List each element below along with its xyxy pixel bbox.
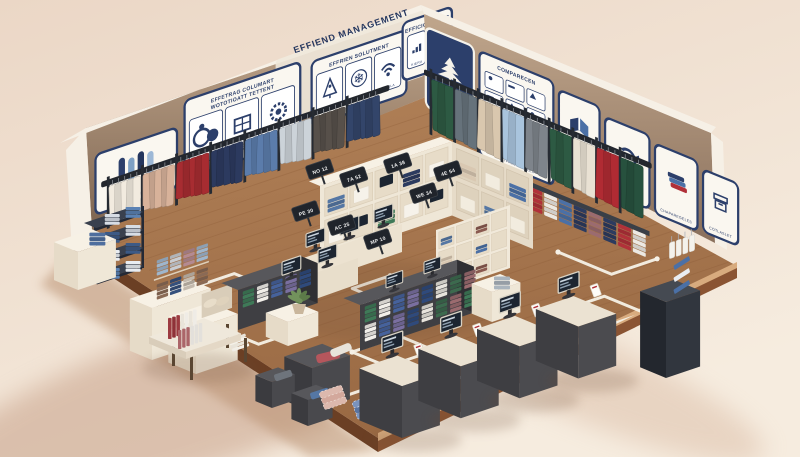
store-illustration: GOSTYRSGOSTYRSEFFETRAG COLUMARTWOTOTIOAT… (0, 0, 800, 457)
hanging-garment (166, 164, 175, 207)
jeans-stack (89, 233, 105, 237)
wall-sign-archive: COTLASLET (703, 169, 738, 246)
path-node (654, 256, 659, 261)
hanging-garment (468, 94, 478, 150)
hanging-garment (336, 107, 345, 150)
hanging-garment (586, 143, 596, 199)
path-node (555, 249, 560, 254)
metal-shelf-stack (105, 218, 120, 221)
standing-book (199, 323, 202, 342)
metal-shelf-stack (105, 214, 120, 217)
small-display-cube (255, 367, 294, 408)
metal-shelf-stack (126, 251, 141, 254)
box-left-face (130, 299, 152, 360)
table-leg (190, 356, 193, 380)
jeans-stack (89, 237, 105, 241)
jeans-stack (89, 242, 105, 246)
metal-shelf-stack (126, 215, 141, 218)
metal-shelf-stack (105, 232, 120, 235)
box-left-face (640, 291, 666, 378)
hanging-garment (372, 95, 380, 137)
hanging-garment (270, 129, 279, 171)
metal-shelf-stack (126, 243, 141, 246)
metal-shelf-stack (126, 247, 141, 250)
table-leg (244, 338, 247, 362)
grey-package-stack (494, 286, 510, 290)
metal-shelf-stack (126, 225, 141, 228)
isometric-store-scene: GOSTYRSGOSTYRSEFFETRAG COLUMARTWOTOTIOAT… (0, 0, 800, 457)
hanging-garment (516, 114, 525, 170)
box-right-face (666, 291, 700, 379)
metal-shelf-stack (126, 229, 141, 232)
hanging-garment (538, 124, 549, 179)
hanging-garment (634, 163, 643, 219)
metal-shelf-stack (126, 207, 141, 210)
metal-shelf-stack (126, 233, 141, 236)
standing-book (172, 317, 176, 338)
hanging-garment (201, 152, 209, 194)
hanging-garment (304, 118, 312, 161)
standing-book (168, 318, 172, 339)
standing-book (182, 329, 185, 348)
metal-shelf-stack (126, 211, 141, 214)
table-shadow (142, 352, 258, 384)
hanging-shirt (669, 241, 674, 259)
hanging-garment (235, 141, 243, 184)
metal-shelf-stack (126, 265, 141, 268)
hanging-shirt (689, 234, 694, 252)
standing-book (195, 324, 198, 343)
standing-book (178, 330, 181, 349)
standing-book (191, 326, 194, 345)
grey-package-stack (494, 281, 510, 285)
hanging-shirt (683, 237, 688, 255)
standing-book (186, 327, 189, 346)
metal-shelf-stack (105, 222, 120, 225)
metal-shelf-stack (126, 261, 141, 264)
metal-shelf-stack (126, 269, 141, 272)
hanging-shirt (676, 239, 681, 257)
grey-package-stack (494, 277, 510, 281)
